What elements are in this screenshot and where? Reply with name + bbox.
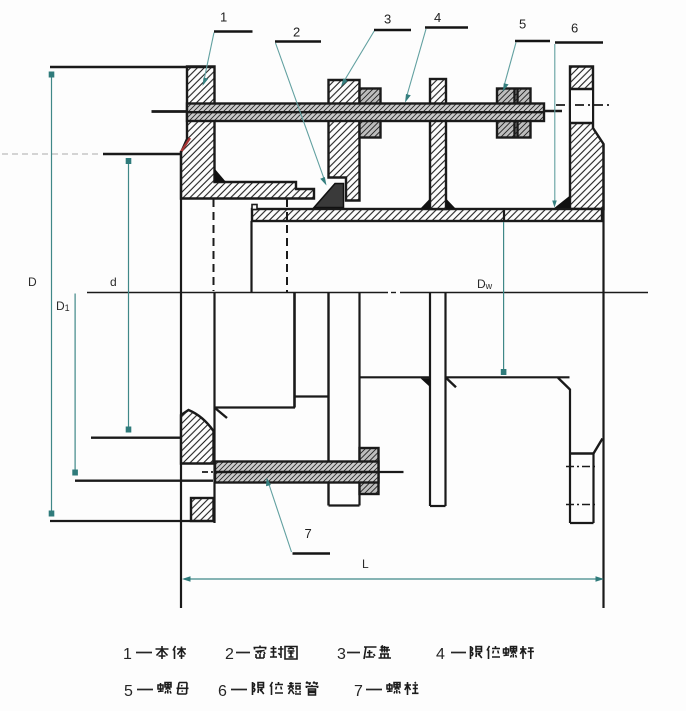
svg-text:2: 2 [225, 646, 234, 663]
svg-text:L: L [362, 557, 369, 571]
svg-text:4: 4 [436, 646, 445, 663]
svg-text:5: 5 [124, 683, 133, 700]
svg-text:7: 7 [305, 526, 312, 541]
svg-text:7: 7 [354, 683, 363, 700]
svg-text:5: 5 [519, 17, 526, 32]
svg-text:6: 6 [218, 683, 227, 700]
svg-text:D: D [28, 275, 37, 289]
svg-text:1: 1 [123, 646, 132, 663]
svg-text:3: 3 [337, 646, 346, 663]
svg-text:3: 3 [384, 12, 391, 27]
svg-text:d: d [110, 275, 117, 289]
svg-text:6: 6 [571, 21, 578, 36]
svg-text:4: 4 [434, 10, 441, 25]
svg-text:2: 2 [293, 25, 300, 40]
svg-text:1: 1 [220, 10, 227, 25]
